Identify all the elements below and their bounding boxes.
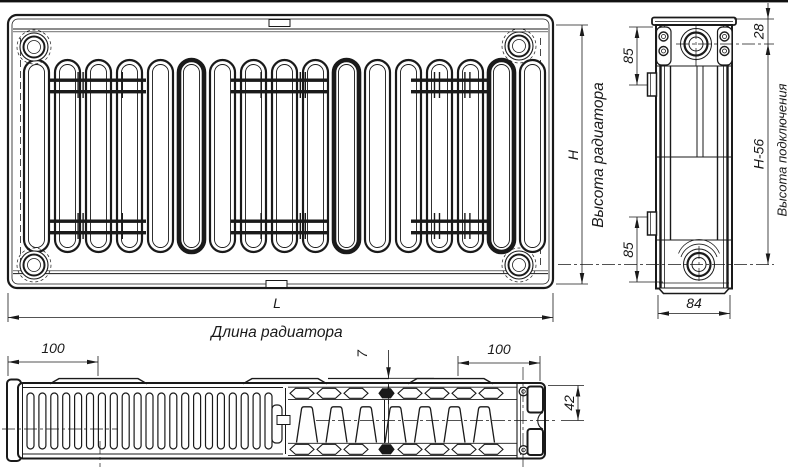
- drawing-canvas: L Длина радиатора H Высота радиатора 85 …: [0, 0, 788, 467]
- bottom-view: [7, 379, 545, 462]
- front-view: [8, 15, 553, 288]
- wall-bracket-bottom: [648, 212, 657, 235]
- end-block-top: [528, 387, 544, 413]
- dim-length-caption: Длина радиатора: [209, 324, 343, 341]
- dim-connection-value: H-56: [751, 139, 767, 170]
- dim-depth: 84: [686, 295, 702, 311]
- dim-bracket-top: 85: [620, 48, 636, 64]
- side-view: [648, 18, 737, 294]
- side-bottom-cap: [659, 289, 729, 294]
- bottom-tab: [266, 281, 287, 288]
- dim-inset-right: 100: [487, 341, 511, 357]
- dim-panel-gap: 7: [354, 349, 370, 358]
- dim-bracket-bottom: 85: [620, 242, 636, 258]
- dim-length-symbol: L: [273, 295, 281, 311]
- seam-clip: [277, 416, 290, 425]
- dim-half-depth: 42: [561, 395, 577, 411]
- wall-bracket-top: [648, 73, 657, 96]
- dim-connection-caption: Высота подключения: [775, 83, 788, 216]
- dim-top-port-offset: 28: [751, 24, 767, 41]
- radiator-drawing: L Длина радиатора H Высота радиатора 85 …: [0, 0, 788, 467]
- dim-height-symbol: H: [565, 149, 581, 160]
- end-block-bottom: [528, 429, 544, 455]
- sheet-border-top: [0, 0, 788, 2]
- top-tab: [269, 20, 290, 27]
- front-fins: [24, 60, 545, 252]
- dim-inset-left: 100: [41, 340, 65, 356]
- dim-height-caption: Высота радиатора: [590, 82, 607, 228]
